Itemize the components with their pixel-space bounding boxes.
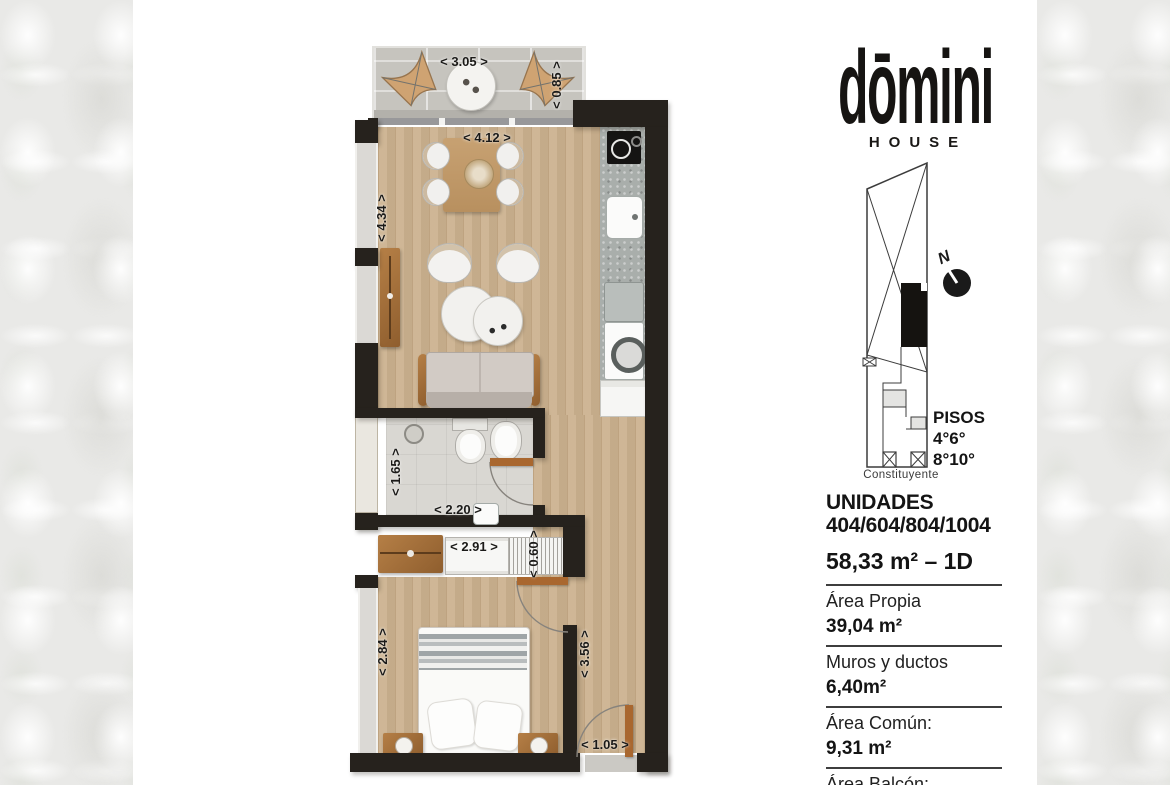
dim-balcony-depth: < 0.85 > bbox=[549, 45, 565, 125]
bedroom-door bbox=[517, 577, 568, 585]
units-title: UNIDADES bbox=[826, 491, 1002, 514]
unit-info: UNIDADES 404/604/804/1004 58,33 m² – 1D … bbox=[826, 491, 1002, 785]
brochure-page: < 3.05 > < 0.85 > < 4.12 > < 4.34 > < 1.… bbox=[0, 0, 1170, 785]
stat-area-comun: Área Común: 9,31 m² bbox=[826, 708, 1002, 769]
stat-value: 6,40m² bbox=[826, 676, 1002, 699]
stat-muros-ductos: Muros y ductos 6,40m² bbox=[826, 647, 1002, 708]
pisos-floors-2: 8°10° bbox=[933, 449, 985, 470]
dim-entry-width: < 1.05 > bbox=[565, 737, 645, 753]
dim-balcony-width: < 3.05 > bbox=[404, 54, 524, 70]
stat-value: 9,31 m² bbox=[826, 737, 1002, 760]
background-foliage-right bbox=[1037, 0, 1170, 785]
dim-hall-height: < 3.56 > bbox=[577, 614, 593, 694]
unit-size: 58,33 m² – 1D bbox=[826, 548, 1002, 586]
pisos-title: PISOS bbox=[933, 407, 985, 428]
dim-living-height: < 4.34 > bbox=[374, 178, 390, 258]
dim-bath-width: < 2.20 > bbox=[408, 502, 508, 518]
stat-area-balcon: Área Balcón: 3,58 m² bbox=[826, 769, 1002, 785]
street-label: Constituyente bbox=[846, 469, 956, 481]
north-label: N bbox=[935, 248, 953, 268]
stat-label: Muros y ductos bbox=[826, 651, 1002, 674]
background-foliage-left bbox=[0, 0, 133, 785]
dim-bedroom-height: < 2.84 > bbox=[375, 612, 391, 692]
dim-living-width: < 4.12 > bbox=[427, 130, 547, 146]
stair-box-icon bbox=[863, 358, 876, 366]
north-arrow-icon: N bbox=[935, 248, 971, 297]
floor-plan: < 3.05 > < 0.85 > < 4.12 > < 4.34 > < 1.… bbox=[338, 38, 678, 778]
stat-value: 39,04 m² bbox=[826, 615, 1002, 638]
brand-wordmark: dōmini bbox=[838, 36, 920, 140]
dim-closet-depth: < 0.60 > bbox=[526, 514, 542, 594]
dim-bath-height: < 1.65 > bbox=[388, 432, 404, 512]
bathroom-door bbox=[490, 458, 533, 466]
units-numbers: 404/604/804/1004 bbox=[826, 514, 1002, 537]
pisos-floors-1: 4°6° bbox=[933, 428, 985, 449]
brand-logo: dōmini HOUSE bbox=[838, 36, 1008, 151]
floors-legend: PISOS 4°6° 8°10° bbox=[933, 407, 985, 470]
stat-label: Área Propia bbox=[826, 590, 1002, 613]
stat-label: Área Común: bbox=[826, 712, 1002, 735]
dim-closet-width: < 2.91 > bbox=[424, 539, 524, 555]
stat-area-propia: Área Propia 39,04 m² bbox=[826, 586, 1002, 647]
stat-label: Área Balcón: bbox=[826, 773, 1002, 785]
